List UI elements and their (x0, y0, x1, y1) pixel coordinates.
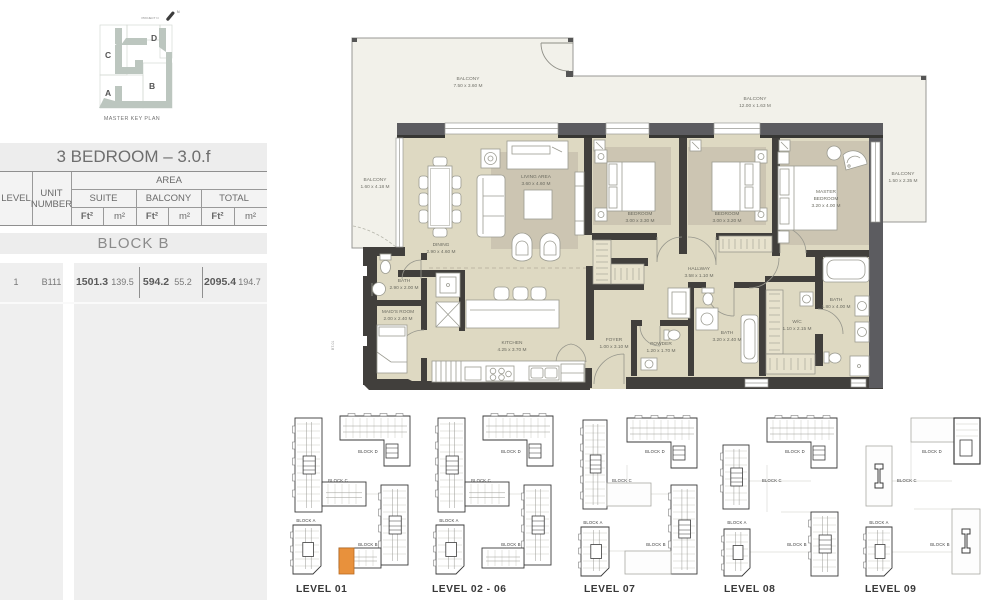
svg-text:LEVEL 01: LEVEL 01 (296, 584, 347, 595)
svg-text:3.20 x 2.40 M: 3.20 x 2.40 M (712, 337, 741, 343)
svg-text:BLOCK B: BLOCK B (930, 542, 950, 547)
svg-text:BLOCK C: BLOCK C (328, 478, 348, 483)
svg-text:LIVING AREA: LIVING AREA (521, 174, 552, 180)
svg-text:LEVEL 08: LEVEL 08 (724, 584, 775, 595)
svg-text:BLOCK A: BLOCK A (727, 520, 746, 525)
svg-text:BLOCK D: BLOCK D (645, 449, 665, 454)
svg-text:BALCONY: BALCONY (892, 171, 916, 177)
svg-text:3.00 x 3.30 M: 3.00 x 3.30 M (625, 218, 654, 224)
svg-text:C: C (105, 50, 111, 60)
svg-text:BLOCK C: BLOCK C (612, 478, 632, 483)
svg-text:3.58 x 1.10 M: 3.58 x 1.10 M (684, 273, 713, 279)
svg-text:1.80 x 4.00 M: 1.80 x 4.00 M (821, 304, 850, 310)
svg-text:BEDROOM: BEDROOM (814, 196, 839, 202)
svg-text:POWDER: POWDER (650, 341, 672, 347)
svg-text:BLOCK A: BLOCK A (583, 520, 602, 525)
svg-text:BLOCK D: BLOCK D (785, 449, 805, 454)
svg-text:BLOCK A: BLOCK A (869, 520, 888, 525)
svg-text:3.60 x 4.60 M: 3.60 x 4.60 M (521, 181, 550, 187)
svg-text:BLOCK D: BLOCK D (922, 449, 942, 454)
svg-text:12.00 x 1.63 M: 12.00 x 1.63 M (739, 103, 771, 109)
svg-text:BEDROOM: BEDROOM (715, 211, 740, 217)
svg-text:BLOCK C: BLOCK C (471, 478, 491, 483)
svg-text:BEDROOM: BEDROOM (628, 211, 653, 217)
svg-text:MASTER: MASTER (816, 189, 837, 195)
svg-text:LEVEL 09: LEVEL 09 (865, 584, 916, 595)
svg-text:4.25 x 3.70 M: 4.25 x 3.70 M (497, 347, 526, 353)
svg-text:BLOCK B: BLOCK B (501, 542, 521, 547)
svg-text:BLOCK A: BLOCK A (296, 518, 315, 523)
svg-text:7.50 x 3.60 M: 7.50 x 3.60 M (453, 83, 482, 89)
svg-text:BLOCK D: BLOCK D (501, 449, 521, 454)
svg-text:D: D (151, 33, 157, 43)
svg-text:MASTER KEY PLAN: MASTER KEY PLAN (104, 116, 160, 122)
svg-text:BLOCK B: BLOCK B (646, 542, 666, 547)
svg-text:LEVEL 02 - 06: LEVEL 02 - 06 (432, 584, 506, 595)
svg-text:BLOCK C: BLOCK C (897, 478, 917, 483)
svg-text:BLOCK B: BLOCK B (358, 542, 378, 547)
svg-text:HALLWAY: HALLWAY (688, 266, 711, 272)
svg-text:DINING: DINING (433, 242, 450, 248)
svg-text:BATH: BATH (830, 297, 843, 303)
svg-text:3.20 x 4.00 M: 3.20 x 4.00 M (811, 203, 840, 209)
svg-text:BLOCK C: BLOCK C (762, 478, 782, 483)
svg-text:BLOCK A: BLOCK A (439, 518, 458, 523)
svg-text:BLOCK B: BLOCK B (787, 542, 807, 547)
svg-text:3.00 x 3.20 M: 3.00 x 3.20 M (712, 218, 741, 224)
svg-text:BALCONY: BALCONY (364, 177, 388, 183)
svg-text:BT-01: BT-01 (331, 341, 335, 350)
svg-text:N: N (177, 10, 180, 14)
svg-text:B: B (149, 81, 155, 91)
svg-text:BALCONY: BALCONY (744, 96, 768, 102)
svg-text:1.00 x 3.10 M: 1.00 x 3.10 M (599, 344, 628, 350)
svg-text:MAID'S ROOM: MAID'S ROOM (382, 309, 414, 315)
svg-text:BATH: BATH (398, 278, 411, 284)
svg-text:2.00 x 2.40 M: 2.00 x 2.40 M (383, 316, 412, 322)
svg-text:2.90 x 2.00 M: 2.90 x 2.00 M (389, 285, 418, 291)
svg-text:2.90 x 4.60 M: 2.90 x 4.60 M (426, 249, 455, 255)
svg-text:A: A (105, 88, 111, 98)
svg-text:W/C: W/C (792, 319, 802, 325)
svg-text:1.10 x 2.15 M: 1.10 x 2.15 M (782, 326, 811, 332)
svg-text:BLOCK D: BLOCK D (358, 449, 378, 454)
svg-text:FOYER: FOYER (606, 337, 623, 343)
svg-text:LEVEL 07: LEVEL 07 (584, 584, 635, 595)
svg-text:1.60 x 4.18 M: 1.60 x 4.18 M (360, 184, 389, 190)
svg-text:BALCONY: BALCONY (457, 76, 481, 82)
svg-text:PROJECT N: PROJECT N (141, 16, 158, 20)
svg-text:KITCHEN: KITCHEN (501, 340, 523, 346)
svg-text:1.20 x 1.70 M: 1.20 x 1.70 M (646, 348, 675, 354)
svg-text:1.50 x 2.35 M: 1.50 x 2.35 M (888, 178, 917, 184)
svg-text:BATH: BATH (721, 330, 734, 336)
